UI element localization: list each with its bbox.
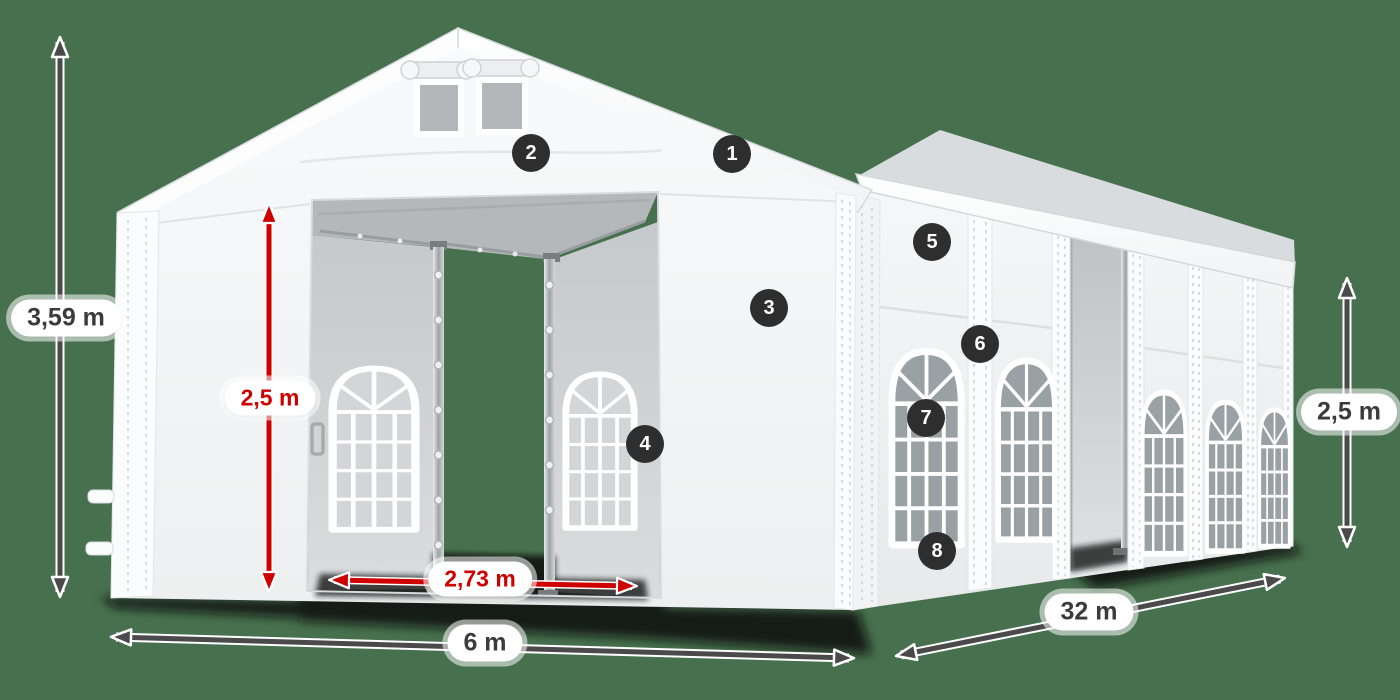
dimension-label-door-width: 2,73 m (428, 562, 532, 597)
dimension-label-total-height: 3,59 m (11, 300, 121, 337)
callout-badge-5[interactable]: 5 (913, 223, 951, 261)
tent-illustration (0, 0, 1400, 700)
callout-badge-4[interactable]: 4 (626, 425, 664, 463)
dimension-label-side-height: 2,5 m (1301, 394, 1397, 431)
callout-badge-7[interactable]: 7 (907, 399, 945, 437)
callout-badge-8[interactable]: 8 (918, 532, 956, 570)
dimension-label-door-height: 2,5 m (225, 381, 316, 416)
tent-diagram-stage: 3,59 m 2,5 m 2,73 m 6 m 32 m 2,5 m 1 2 3… (0, 0, 1400, 700)
open-side-bay (1070, 235, 1128, 572)
dimension-label-front-width: 6 m (447, 625, 522, 662)
wall-strap (88, 490, 114, 503)
door-opening (307, 192, 661, 600)
dimension-label-side-length: 32 m (1045, 594, 1134, 631)
callout-badge-1[interactable]: 1 (713, 135, 751, 173)
wall-strap (86, 542, 113, 555)
callout-badge-2[interactable]: 2 (512, 134, 550, 172)
callout-badge-6[interactable]: 6 (961, 325, 999, 363)
callout-badge-3[interactable]: 3 (750, 289, 788, 327)
